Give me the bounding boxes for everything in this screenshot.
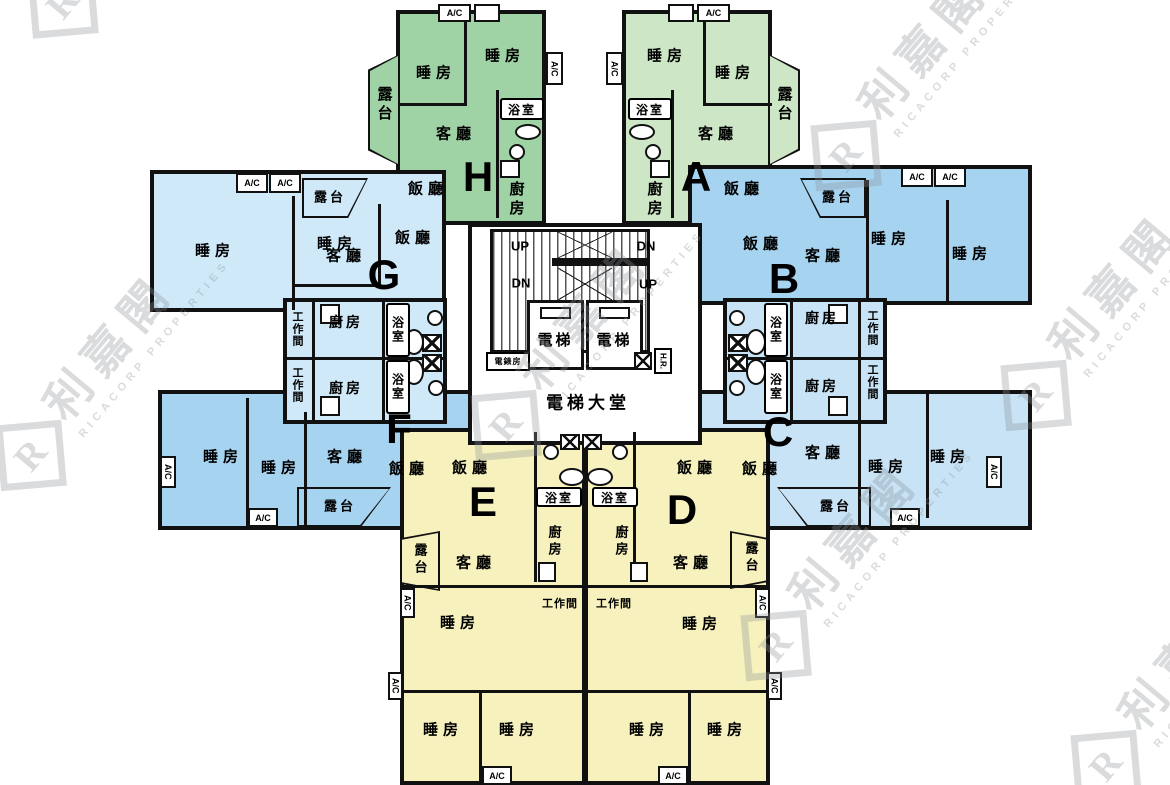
lift-1-label: 電梯 xyxy=(530,319,581,359)
unit-e-letter: E xyxy=(469,478,497,526)
unit-b-balcony-label: 露台 xyxy=(822,187,854,206)
wall xyxy=(866,180,869,302)
unit-d-utility-label: 工作間 xyxy=(596,595,632,611)
wall xyxy=(586,585,768,588)
unit-c-bedroom-2-label: 睡房 xyxy=(930,446,970,467)
unit-g-dining-label: 飯廳 xyxy=(395,227,435,248)
basin xyxy=(543,444,559,460)
unit-e-living-label: 客廳 xyxy=(456,552,496,573)
ricacorp-logo-icon: R xyxy=(1070,730,1142,785)
duct-xbox xyxy=(728,334,748,352)
unit-a-bedroom-1-label: 睡房 xyxy=(647,45,687,66)
unit-a-balcony-label: 露台 xyxy=(774,86,795,124)
ac-box: A/C xyxy=(658,766,688,785)
ac-box: A/C xyxy=(236,173,268,193)
duct-xbox xyxy=(422,334,442,352)
hose-reel-label: H.R. xyxy=(654,348,672,374)
stove xyxy=(500,160,520,178)
unit-b-bathroom-label: 浴室 xyxy=(764,303,788,357)
unit-f-balcony-label: 露台 xyxy=(324,496,356,515)
ac-box: A/C xyxy=(934,167,966,187)
unit-f-living-label: 客廳 xyxy=(327,446,367,467)
stair-down-label-2: DN xyxy=(512,276,531,291)
unit-e-utility-label: 工作間 xyxy=(542,595,578,611)
unit-g-utility-label: 工作間 xyxy=(289,311,305,347)
wall xyxy=(586,690,768,693)
unit-b-letter: B xyxy=(769,255,799,303)
unit-a-dining-label: 飯廳 xyxy=(724,178,764,199)
ac-box: A/C xyxy=(248,508,278,527)
unit-c-letter: C xyxy=(763,408,793,456)
unit-h-dining-label: 飯廳 xyxy=(408,178,448,199)
toilet xyxy=(587,468,613,486)
unit-d-bedroom-3-label: 睡房 xyxy=(707,719,747,740)
stove xyxy=(650,160,670,178)
ac-box: A/C xyxy=(986,456,1002,488)
unit-h-balcony-label: 露台 xyxy=(374,86,395,124)
ac-box: A/C xyxy=(697,4,730,22)
stove xyxy=(538,562,556,582)
unit-b-kitchen-label: 廚房 xyxy=(805,308,839,328)
unit-f-bathroom-label: 浴室 xyxy=(386,360,410,414)
unit-e-bedroom-3-label: 睡房 xyxy=(499,719,539,740)
duct-xbox xyxy=(422,354,442,372)
wall xyxy=(534,432,537,582)
watermark-brand-cjk: 利嘉閣 xyxy=(852,0,1033,128)
basin xyxy=(509,144,525,160)
wall xyxy=(703,12,706,106)
ac-box: A/C xyxy=(546,52,563,85)
unit-e-balcony-label: 露台 xyxy=(411,543,430,577)
unit-h-kitchen-label: 廚房 xyxy=(506,181,527,219)
floor-plan: UP DN DN UP 電梯 電梯 電錶房 H.R. 電梯大堂 xyxy=(0,0,1170,785)
unit-e-kitchen-label: 廚房 xyxy=(545,525,564,559)
duct-xbox xyxy=(582,434,602,450)
unit-g-living-label: 客廳 xyxy=(326,245,366,266)
ac-box: A/C xyxy=(606,52,623,85)
unit-b-bedroom-2-label: 睡房 xyxy=(952,243,992,264)
toilet xyxy=(746,359,766,385)
unit-g-bedroom-1-label: 睡房 xyxy=(195,240,235,261)
unit-d-letter: D xyxy=(667,486,697,534)
unit-c-balcony-label: 露台 xyxy=(820,496,852,515)
ac-box: A/C xyxy=(890,508,920,527)
ac-box: A/C xyxy=(400,588,415,618)
wall xyxy=(926,392,929,518)
ac-box: A/C xyxy=(901,167,933,187)
lift-2-label: 電梯 xyxy=(589,319,640,359)
unit-d-dining-label: 飯廳 xyxy=(677,457,717,478)
toilet xyxy=(746,329,766,355)
stove xyxy=(320,396,340,416)
unit-f-kitchen-label: 廚房 xyxy=(329,378,363,398)
unit-f-bedroom-2-label: 睡房 xyxy=(261,457,301,478)
unit-c-bedroom-1-label: 睡房 xyxy=(868,456,908,477)
wall xyxy=(312,300,315,422)
duct-box xyxy=(668,4,694,22)
unit-b-bedroom-1-label: 睡房 xyxy=(871,228,911,249)
basin xyxy=(612,444,628,460)
unit-e-bathroom-label: 浴室 xyxy=(536,487,582,507)
wall xyxy=(706,103,772,106)
unit-c-kitchen-label: 廚房 xyxy=(805,376,839,396)
unit-h-bedroom-2-label: 睡房 xyxy=(485,45,525,66)
stair-cross-upper xyxy=(558,232,612,258)
ac-box: A/C xyxy=(482,766,512,785)
basin xyxy=(729,310,745,326)
wall xyxy=(294,284,378,287)
lift-1: 電梯 xyxy=(527,300,584,370)
wall xyxy=(725,357,885,360)
wall xyxy=(858,300,861,422)
toilet xyxy=(515,124,541,140)
unit-h-letter: H xyxy=(463,153,493,201)
lift-2-door xyxy=(599,307,630,319)
unit-b-utility-label: 工作間 xyxy=(864,310,880,346)
ac-box: A/C xyxy=(767,672,782,700)
ac-box: A/C xyxy=(755,588,770,618)
unit-a-letter: A xyxy=(681,153,711,201)
ac-box: A/C xyxy=(388,672,403,700)
unit-d-bedroom-1-label: 睡房 xyxy=(682,613,722,634)
watermark-brand-cjk: 利嘉閣 xyxy=(1112,535,1170,739)
duct-box xyxy=(474,4,500,22)
watermark-brand-latin: RICACORP PROPERTIES xyxy=(1152,568,1170,750)
ricacorp-logo-icon: R xyxy=(27,0,99,39)
wall xyxy=(633,432,636,582)
unit-d-kitchen-label: 廚房 xyxy=(612,525,631,559)
unit-f-utility-label: 工作間 xyxy=(289,367,305,403)
wall xyxy=(402,585,584,588)
wall xyxy=(946,200,949,303)
stair-cross-lower xyxy=(558,268,612,300)
wall xyxy=(304,412,307,528)
unit-d-bedroom-2-label: 睡房 xyxy=(629,719,669,740)
wall xyxy=(790,300,793,422)
toilet xyxy=(629,124,655,140)
lift-lobby-label: 電梯大堂 xyxy=(546,389,630,414)
unit-d-living-label: 客廳 xyxy=(673,552,713,573)
unit-g-bathroom-label: 浴室 xyxy=(386,303,410,357)
meter-room-label: 電錶房 xyxy=(486,352,530,371)
basin xyxy=(645,144,661,160)
basin xyxy=(428,380,444,396)
unit-g-balcony-label: 露台 xyxy=(314,187,346,206)
stair-up-label-1: UP xyxy=(511,239,529,254)
basin xyxy=(729,380,745,396)
unit-h-living-label: 客廳 xyxy=(436,123,476,144)
duct-xbox xyxy=(560,434,580,450)
toilet xyxy=(559,468,585,486)
ac-box: A/C xyxy=(160,456,176,488)
wall xyxy=(858,408,861,528)
unit-e-dining-label: 飯廳 xyxy=(452,457,492,478)
ricacorp-logo-icon: R xyxy=(0,420,67,492)
wall xyxy=(285,357,445,360)
wall xyxy=(496,90,499,218)
unit-e-bedroom-1-label: 睡房 xyxy=(440,612,480,633)
unit-f-bedroom-1-label: 睡房 xyxy=(203,446,243,467)
basin xyxy=(427,310,443,326)
unit-a-bathroom-label: 浴室 xyxy=(628,98,672,120)
ac-box: A/C xyxy=(269,173,301,193)
stair-landing xyxy=(552,258,648,266)
unit-h-bathroom-label: 浴室 xyxy=(500,98,544,120)
watermark: R xyxy=(17,0,110,49)
watermark: R 利嘉閣 RICACORP PROPERTIES xyxy=(1060,534,1170,785)
unit-c-bathroom-label: 浴室 xyxy=(764,360,788,414)
unit-b-dining-label: 飯廳 xyxy=(743,233,783,254)
unit-e-bedroom-2-label: 睡房 xyxy=(423,719,463,740)
wall xyxy=(292,196,295,310)
hose-reel-xbox xyxy=(634,352,652,370)
unit-h-bedroom-1-label: 睡房 xyxy=(416,62,456,83)
wall xyxy=(402,690,584,693)
wall xyxy=(398,103,464,106)
watermark-brand-cjk: 利嘉閣 xyxy=(1042,165,1170,369)
unit-a-kitchen-label: 廚房 xyxy=(644,181,665,219)
stove xyxy=(630,562,648,582)
unit-f-dining-label: 飯廳 xyxy=(389,458,429,479)
unit-c-utility-label: 工作間 xyxy=(864,364,880,400)
wall xyxy=(688,692,691,783)
ac-box: A/C xyxy=(438,4,471,22)
unit-c-living-label: 客廳 xyxy=(805,442,845,463)
watermark-brand-latin: RICACORP PROPERTIES xyxy=(892,0,1047,140)
lift-1-door xyxy=(540,307,571,319)
unit-g-kitchen-label: 廚房 xyxy=(329,312,363,332)
stair-down-label-1: DN xyxy=(637,239,656,254)
unit-d-bathroom-label: 浴室 xyxy=(592,487,638,507)
unit-d-balcony-label: 露台 xyxy=(742,541,761,575)
unit-a-bedroom-2-label: 睡房 xyxy=(715,62,755,83)
unit-g-letter: G xyxy=(368,251,401,299)
unit-c-dining-label: 飯廳 xyxy=(742,458,782,479)
wall xyxy=(382,300,385,422)
wall xyxy=(464,12,467,106)
stair-up-label-2: UP xyxy=(639,277,657,292)
unit-a-living-label: 客廳 xyxy=(698,123,738,144)
duct-xbox xyxy=(728,354,748,372)
unit-b-living-label: 客廳 xyxy=(805,245,845,266)
stove xyxy=(828,396,848,416)
watermark-brand-latin: RICACORP PROPERTIES xyxy=(1082,198,1170,380)
